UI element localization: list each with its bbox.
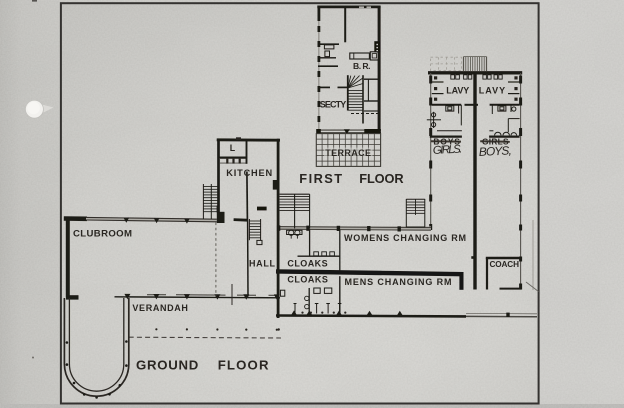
svg-text:TERRACE: TERRACE	[325, 148, 371, 158]
svg-text:GROUND: GROUND	[136, 358, 198, 373]
svg-text:GIRLS.: GIRLS.	[433, 143, 463, 157]
svg-text:HALL: HALL	[249, 258, 276, 268]
svg-text:CLUBROOM: CLUBROOM	[73, 228, 132, 239]
svg-text:SECTY: SECTY	[320, 99, 347, 109]
svg-text:FLOOR: FLOOR	[359, 171, 403, 186]
svg-text:LAVY: LAVY	[479, 86, 506, 96]
svg-text:CLOAKS: CLOAKS	[287, 274, 328, 284]
svg-text:VERANDAH: VERANDAH	[132, 303, 188, 313]
svg-text:L: L	[230, 143, 236, 153]
svg-text:B. R.: B. R.	[353, 61, 371, 71]
svg-text:FLOOR: FLOOR	[218, 358, 269, 373]
svg-text:COACH: COACH	[490, 260, 520, 269]
svg-text:BOYS,: BOYS,	[478, 143, 512, 159]
svg-text:WOMENS CHANGING RM: WOMENS CHANGING RM	[344, 233, 466, 243]
svg-text:CLOAKS: CLOAKS	[287, 259, 327, 269]
svg-text:LAVY: LAVY	[446, 86, 469, 96]
svg-text:FIRST: FIRST	[299, 171, 342, 186]
svg-text:KITCHEN: KITCHEN	[226, 168, 272, 178]
svg-text:MENS CHANGING RM: MENS CHANGING RM	[345, 277, 452, 287]
